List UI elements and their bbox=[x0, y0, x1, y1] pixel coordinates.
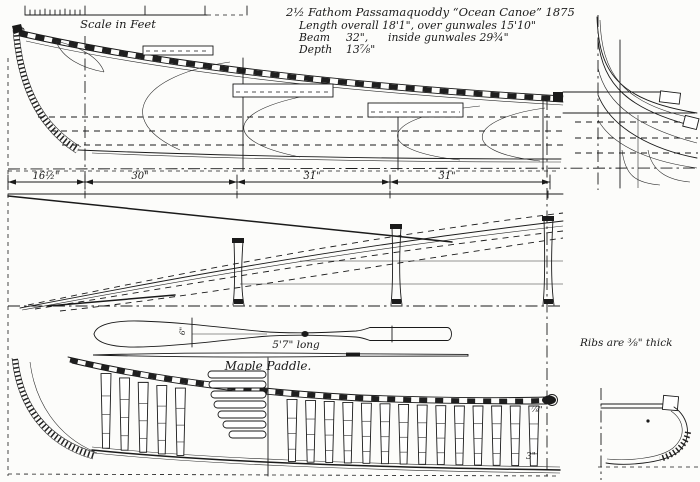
depth-value: 13⅞" bbox=[346, 43, 375, 56]
ribs-group bbox=[101, 374, 539, 466]
drawing-sheet: Scale in Feet 2½ Fathom Passamaquoddy “O… bbox=[0, 0, 700, 482]
midship-half-section-view bbox=[598, 388, 698, 480]
scale-label: Scale in Feet bbox=[80, 17, 156, 31]
dim-30: 30" bbox=[131, 171, 148, 182]
scale-bar: Scale in Feet bbox=[25, 6, 247, 31]
ribs-note: Ribs are ⅜" thick bbox=[579, 337, 672, 349]
interior-elevation-view: ⅞" 3" bbox=[8, 357, 560, 476]
depth-label: Depth bbox=[298, 43, 332, 56]
half-breadth-plan-view bbox=[8, 191, 563, 311]
title-block: 2½ Fathom Passamaquoddy “Ocean Canoe” 18… bbox=[285, 5, 575, 56]
bow-rib-stack bbox=[208, 371, 266, 438]
rib-top-dim: ⅞" bbox=[531, 405, 542, 414]
rib-bottom-dim: 3" bbox=[526, 452, 536, 462]
dimension-line: 16½" 30" 31" 31" bbox=[8, 171, 558, 189]
dim-31-b: 31" bbox=[438, 171, 455, 182]
paddle-width-label: 6" bbox=[178, 327, 187, 335]
title-line: 2½ Fathom Passamaquoddy “Ocean Canoe” 18… bbox=[285, 5, 575, 19]
dim-16-5: 16½" bbox=[32, 171, 59, 182]
body-plan-view bbox=[563, 15, 699, 190]
thwart-3 bbox=[542, 216, 554, 305]
paddle-drawing: 6" 5'7" long Maple Paddle. bbox=[93, 318, 468, 373]
paddle-length-label: 5'7" long bbox=[272, 339, 320, 351]
beam-note: inside gunwales 29¾" bbox=[388, 31, 509, 44]
dim-31-a: 31" bbox=[303, 171, 320, 182]
canoe-plan-drawing: Scale in Feet 2½ Fathom Passamaquoddy “O… bbox=[0, 0, 700, 482]
